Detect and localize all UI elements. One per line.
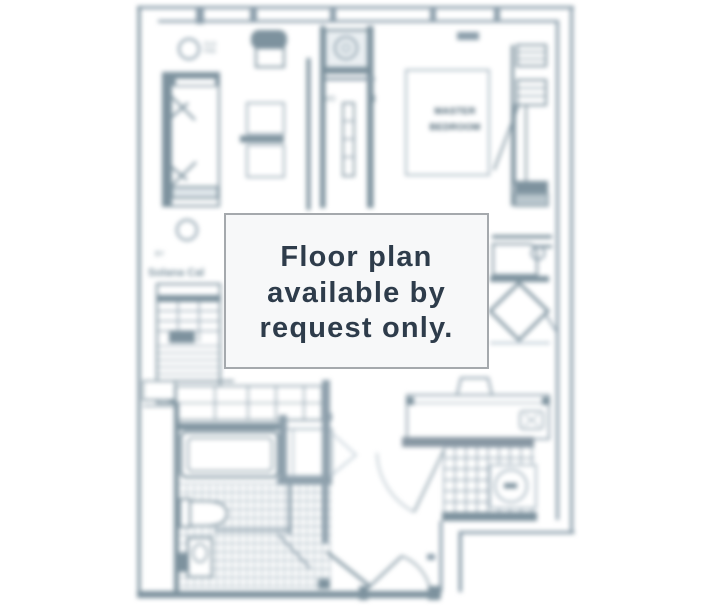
svg-text:BEDROOM: BEDROOM — [429, 122, 480, 133]
svg-text:Solana Cal: Solana Cal — [148, 267, 204, 279]
svg-text:FAN: FAN — [204, 49, 216, 55]
svg-text:CLG: CLG — [204, 42, 217, 48]
svg-text:MASTER: MASTER — [434, 106, 475, 117]
svg-text:BY: BY — [155, 251, 165, 258]
svg-text:W/D: W/D — [322, 96, 336, 103]
